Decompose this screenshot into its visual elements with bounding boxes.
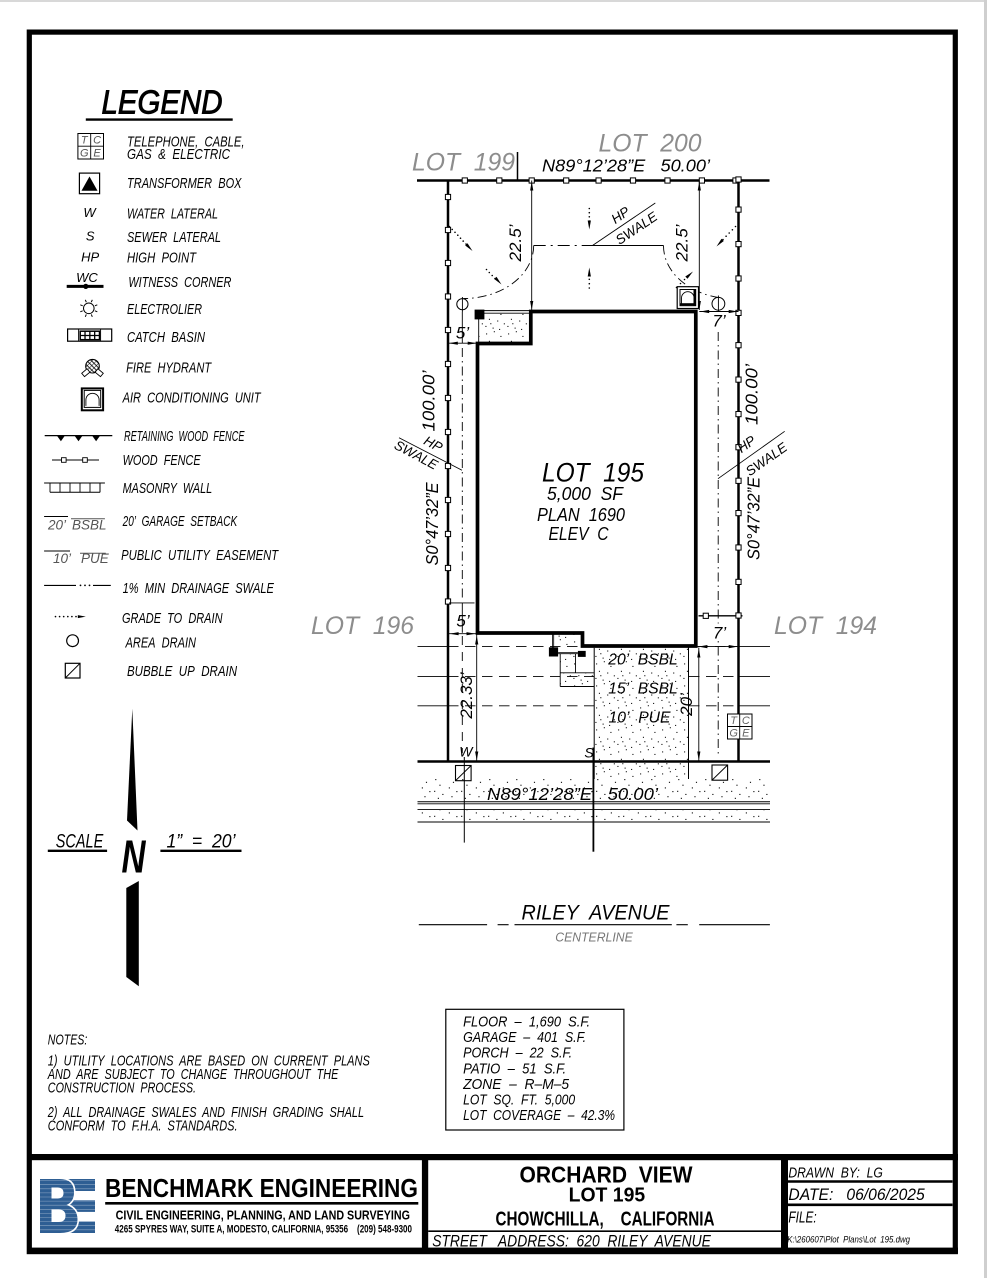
svg-text:FLOOR – 1,690 S.F.: FLOOR – 1,690 S.F. [463, 1015, 590, 1031]
svg-text:GRADE TO DRAIN: GRADE TO DRAIN [122, 611, 223, 627]
svg-text:HP: HP [81, 249, 99, 264]
svg-text:SEWER LATERAL: SEWER LATERAL [127, 230, 221, 246]
svg-text:CONFORM TO F.H.A. STANDARDS: CONFORM TO F.H.A. STANDARDS. [48, 1119, 238, 1135]
svg-text:S0°47’32”E: S0°47’32”E [744, 477, 764, 560]
svg-text:S: S [584, 745, 594, 761]
svg-text:RILEY AVENUE: RILEY AVENUE [522, 901, 671, 925]
svg-text:PATIO – 51 S.F.: PATIO – 51 S.F. [463, 1061, 566, 1077]
svg-text:RETAINING WOOD FENCE: RETAINING WOOD FENCE [124, 429, 245, 445]
svg-text:20’: 20’ [47, 518, 67, 533]
svg-text:W: W [83, 205, 97, 220]
svg-text:100.00’: 100.00’ [419, 369, 439, 431]
svg-text:10’ PUE: 10’ PUE [609, 710, 672, 727]
svg-text:G: G [729, 727, 738, 739]
svg-text:MASONRY WALL: MASONRY WALL [123, 481, 213, 497]
svg-text:4265 SPYRES WAY, SUITE A, MODE: 4265 SPYRES WAY, SUITE A, MODESTO, CALIF… [115, 1223, 412, 1235]
svg-text:100.00’: 100.00’ [742, 363, 762, 425]
svg-text:ELECTROLIER: ELECTROLIER [127, 302, 202, 318]
svg-text:LOT 200: LOT 200 [599, 130, 702, 158]
svg-text:1% MIN DRAINAGE SWALE: 1% MIN DRAINAGE SWALE [123, 581, 275, 597]
svg-text:WATER LATERAL: WATER LATERAL [127, 207, 218, 223]
svg-text:5’: 5’ [456, 324, 469, 343]
svg-text:1” = 20’: 1” = 20’ [167, 831, 237, 852]
svg-text:LOT 194: LOT 194 [774, 612, 877, 640]
svg-text:E: E [93, 147, 101, 159]
svg-text:N: N [122, 831, 147, 883]
svg-text:FIRE HYDRANT: FIRE HYDRANT [126, 360, 212, 376]
svg-text:G: G [80, 147, 89, 159]
svg-text:TRANSFORMER BOX: TRANSFORMER BOX [127, 176, 243, 192]
svg-text:LOT 196: LOT 196 [311, 612, 414, 640]
svg-text:WC: WC [76, 270, 98, 285]
svg-text:S: S [86, 229, 95, 244]
svg-text:LOT SQ. FT. 5,000: LOT SQ. FT. 5,000 [463, 1093, 576, 1109]
svg-text:LOT 195: LOT 195 [569, 1185, 646, 1207]
svg-text:22.33’: 22.33’ [457, 672, 476, 720]
svg-text:7’: 7’ [712, 312, 725, 331]
svg-text:ZONE – R–M–5: ZONE – R–M–5 [462, 1077, 570, 1093]
svg-text:PLAN 1690: PLAN 1690 [537, 504, 626, 525]
svg-text:7’: 7’ [713, 624, 726, 643]
svg-text:LOT COVERAGE – 42.3%: LOT COVERAGE – 42.3% [463, 1108, 615, 1124]
svg-text:WITNESS CORNER: WITNESS CORNER [128, 275, 231, 291]
svg-text:S0°47’32”E: S0°47’32”E [422, 482, 442, 565]
svg-text:NOTES:: NOTES: [48, 1032, 88, 1048]
svg-text:N89°12’28”E 50.00’: N89°12’28”E 50.00’ [487, 784, 659, 804]
svg-text:AREA DRAIN: AREA DRAIN [125, 635, 197, 651]
svg-text:LOT 199: LOT 199 [412, 149, 515, 177]
svg-text:FILE:: FILE: [788, 1210, 816, 1227]
svg-text:E: E [742, 727, 750, 739]
svg-text:CENTERLINE: CENTERLINE [555, 931, 633, 945]
svg-text:20’: 20’ [677, 693, 696, 717]
svg-text:20’ GARAGE SETBACK: 20’ GARAGE SETBACK [122, 514, 238, 530]
svg-text:BSBL: BSBL [72, 518, 107, 533]
svg-text:DRAWN BY: LG: DRAWN BY: LG [788, 1166, 882, 1182]
svg-text:PORCH – 22 S.F.: PORCH – 22 S.F. [463, 1046, 572, 1062]
svg-text:WOOD FENCE: WOOD FENCE [123, 453, 201, 469]
svg-text:LEGEND: LEGEND [102, 84, 223, 121]
svg-text:CATCH BASIN: CATCH BASIN [127, 330, 205, 346]
svg-text:5’: 5’ [456, 612, 469, 631]
svg-text:K:\260607\Plot Plans\Lot 195: K:\260607\Plot Plans\Lot 195.dwg [787, 1234, 910, 1244]
svg-text:DATE: 06/06/2025: DATE: 06/06/2025 [788, 1186, 925, 1204]
svg-text:HIGH POINT: HIGH POINT [127, 251, 197, 267]
svg-text:SCALE: SCALE [56, 831, 104, 852]
svg-text:AIR CONDITIONING UNIT: AIR CONDITIONING UNIT [122, 390, 262, 406]
svg-text:GAS & ELECTRIC: GAS & ELECTRIC [127, 147, 230, 163]
svg-text:W: W [459, 744, 474, 760]
svg-text:10’: 10’ [53, 551, 72, 566]
svg-text:C: C [742, 715, 750, 727]
svg-text:BENCHMARK ENGINEERING: BENCHMARK ENGINEERING [105, 1175, 418, 1203]
svg-text:CIVIL ENGINEERING, PLANNING, A: CIVIL ENGINEERING, PLANNING, AND LAND SU… [116, 1208, 410, 1223]
svg-text:5,000 SF: 5,000 SF [547, 483, 625, 504]
svg-text:N89°12’28”E 50.00’: N89°12’28”E 50.00’ [542, 156, 711, 176]
svg-text:PUBLIC UTILITY EASEMENT: PUBLIC UTILITY EASEMENT [121, 548, 279, 564]
svg-text:22.5’: 22.5’ [506, 224, 525, 262]
svg-text:22.5’: 22.5’ [673, 224, 692, 262]
svg-text:CHOWCHILLA, CALIFORNIA: CHOWCHILLA, CALIFORNIA [496, 1208, 715, 1230]
svg-text:C: C [93, 135, 101, 147]
svg-text:20’ BSBL: 20’ BSBL [607, 652, 678, 669]
svg-text:15’ BSBL: 15’ BSBL [608, 681, 678, 698]
svg-text:BUBBLE UP DRAIN: BUBBLE UP DRAIN [127, 664, 237, 680]
svg-text:ELEV C: ELEV C [549, 523, 610, 544]
svg-text:CONSTRUCTION PROCESS.: CONSTRUCTION PROCESS. [48, 1080, 196, 1096]
svg-text:GARAGE – 401 S.F.: GARAGE – 401 S.F. [463, 1030, 586, 1046]
